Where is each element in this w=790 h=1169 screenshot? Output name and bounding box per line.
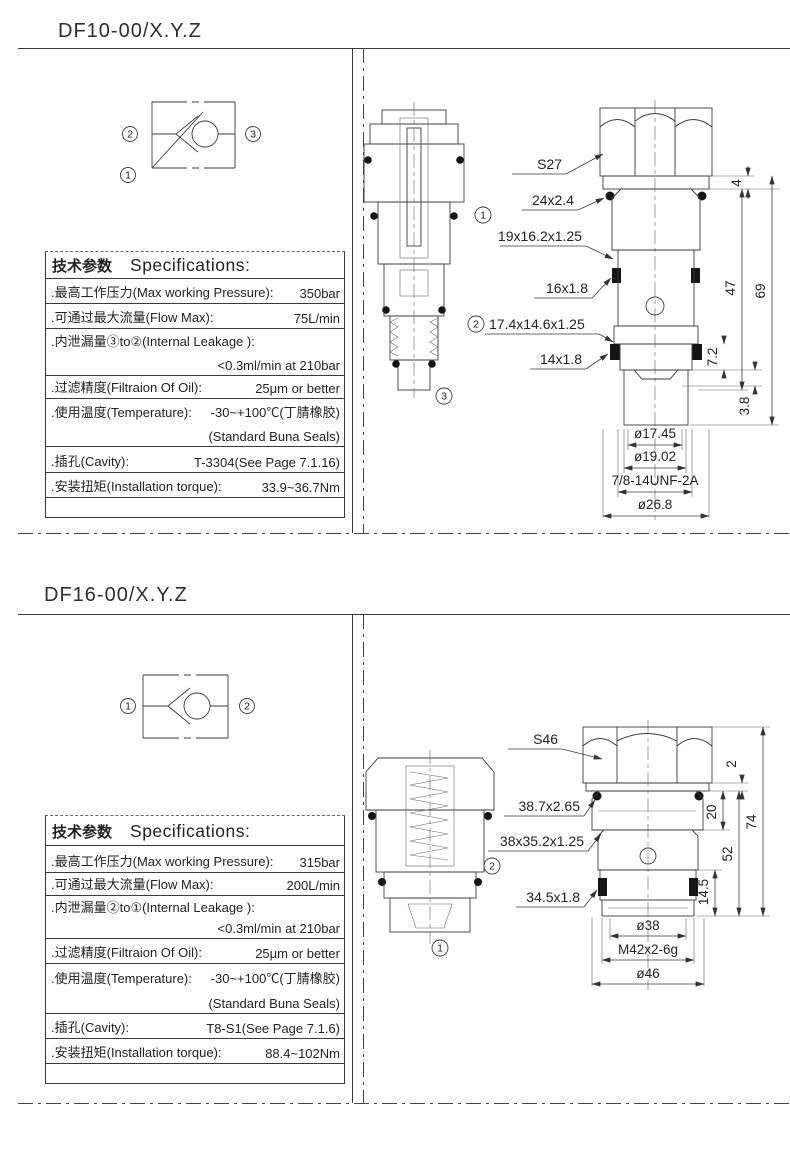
spec-row-filtration: .过滤精度(Filtraion Of Oil): 25μm or better — [46, 376, 344, 399]
dim-overall: 74 — [744, 814, 759, 830]
dim-tip: 3.8 — [737, 397, 752, 416]
dim-overall: 69 — [753, 283, 768, 298]
dim-washer: 4 — [729, 179, 744, 187]
specs-header-en: Specifications: — [130, 255, 250, 276]
dim-thread: 7/8-14UNF-2A — [611, 473, 698, 488]
spec-row-pressure: .最高工作压力(Max working Pressure): 315bar — [46, 846, 344, 873]
specs-header: 技术参数 Specifications: — [46, 252, 344, 279]
df10-leader-labels: S27 24x2.4 19x16.2x1.25 16x1.8 2 17.4x14… — [468, 154, 613, 369]
label-seal1: 24x2.4 — [532, 192, 574, 208]
port-label-2: 2 — [484, 858, 500, 874]
spec-row-flow: .可通过最大流量(Flow Max): 200L/min — [46, 873, 344, 896]
svg-text:3: 3 — [250, 129, 256, 141]
svg-text:1: 1 — [480, 210, 486, 222]
symbol-port-left: 1 — [121, 699, 136, 714]
df16-side-dimensions: 2 20 52 74 14.5 — [696, 727, 770, 916]
label-seal1: 38.7x2.65 — [519, 798, 581, 814]
label-seal5: 14x1.8 — [540, 351, 582, 367]
symbol-port-bottom: 1 — [121, 168, 136, 183]
df10-hydraulic-symbol: 2 3 1 — [100, 90, 280, 190]
label-seal2: 38x35.2x1.25 — [500, 833, 584, 849]
port-label-1: 1 — [475, 207, 491, 223]
df16-cross-section: 2 1 — [366, 750, 500, 956]
spec-row-empty — [46, 498, 344, 518]
df10-bottom-dimensions: ø17.45 ø19.02 7/8-14UNF-2A ø26.8 — [603, 426, 709, 518]
svg-text:1: 1 — [125, 701, 131, 713]
svg-text:1: 1 — [437, 943, 443, 955]
spec-row-cavity: .插孔(Cavity): T-3304(See Page 7.1.16) — [46, 447, 344, 473]
df16-leader-labels: S46 38.7x2.65 38x35.2x1.25 34.5x1.8 — [488, 731, 602, 907]
specs-header-en: Specifications: — [130, 821, 250, 842]
spec-row-leakage-value: <0.3ml/min at 210bar — [46, 918, 344, 939]
spec-row-leakage-label: .内泄漏量③to②(Internal Leakage ): — [46, 329, 344, 352]
dim-dia2: ø46 — [636, 966, 659, 981]
svg-text:2: 2 — [127, 129, 133, 141]
label-seal3: 34.5x1.8 — [526, 889, 580, 905]
spec-row-seals: (Standard Buna Seals) — [46, 989, 344, 1014]
specs-header-cn: 技术参数 — [52, 255, 112, 276]
section-bottom-dashdot — [18, 533, 790, 534]
df10-side-dimensions: 4 47 69 7.2 3.8 — [682, 166, 780, 425]
dim-thread: M42x2-6g — [618, 942, 678, 957]
spec-row-temperature: .使用温度(Temperature): -30~+100℃(丁腈橡胶) — [46, 399, 344, 423]
port-label-1: 1 — [432, 940, 448, 956]
spec-row-pressure: .最高工作压力(Max working Pressure): 350bar — [46, 279, 344, 304]
spec-row-seals: (Standard Buna Seals) — [46, 423, 344, 447]
svg-text:3: 3 — [441, 391, 447, 403]
dim-dia2: ø19.02 — [634, 449, 676, 464]
df16-drawing-area: 2 1 ø — [352, 614, 790, 1103]
dim-washer: 2 — [724, 760, 739, 768]
spec-row-filtration: .过滤精度(Filtraion Of Oil): 25μm or better — [46, 939, 344, 964]
spec-row-empty — [46, 1064, 344, 1084]
dim-dia3: ø26.8 — [638, 497, 673, 512]
dim-dia1: ø17.45 — [634, 426, 676, 441]
spec-row-torque: .安装扭矩(Installation torque): 88.4~102Nm — [46, 1039, 344, 1064]
specs-header-cn: 技术参数 — [52, 821, 112, 842]
dim-lower: 52 — [720, 846, 735, 861]
specs-table-df10: 技术参数 Specifications: .最高工作压力(Max working… — [45, 251, 345, 518]
specs-table-df16: 技术参数 Specifications: .最高工作压力(Max working… — [45, 815, 345, 1084]
spec-row-flow: .可通过最大流量(Flow Max): 75L/min — [46, 304, 344, 329]
port-label-2: 2 — [468, 316, 484, 332]
dim-tip: 14.5 — [696, 879, 711, 905]
df10-cross-section: 1 3 — [364, 102, 491, 404]
df16-hydraulic-symbol: 1 2 — [100, 650, 280, 750]
dim-mid: 20 — [704, 804, 719, 819]
df16-bottom-dimensions: ø38 M42x2-6g ø46 — [592, 918, 704, 986]
dim-dia1: ø38 — [636, 918, 659, 933]
spec-row-temperature: .使用温度(Temperature): -30~+100℃(丁腈橡胶) — [46, 964, 344, 989]
spec-row-leakage-value: <0.3ml/min at 210bar — [46, 352, 344, 376]
symbol-port-left: 2 — [123, 127, 138, 142]
section-title-df10: DF10-00/X.Y.Z — [58, 20, 202, 43]
symbol-port-right: 2 — [240, 699, 255, 714]
spec-row-leakage-label: .内泄漏量②to①(Internal Leakage ): — [46, 896, 344, 918]
spec-row-torque: .安装扭矩(Installation torque): 33.9~36.7Nm — [46, 473, 344, 498]
dim-groove: 7.2 — [705, 348, 720, 367]
svg-text:2: 2 — [244, 701, 250, 713]
svg-text:2: 2 — [489, 861, 495, 873]
label-seal4: 17.4x14.6x1.25 — [489, 316, 585, 332]
symbol-port-right: 3 — [246, 127, 261, 142]
label-seal3: 16x1.8 — [546, 280, 588, 296]
section-title-df16: DF16-00/X.Y.Z — [44, 584, 188, 607]
label-seal2: 19x16.2x1.25 — [498, 228, 582, 244]
section-bottom-dashdot-2 — [18, 1103, 790, 1104]
spec-row-cavity: .插孔(Cavity): T8-S1(See Page 7.1.6) — [46, 1014, 344, 1039]
dim-mid: 47 — [723, 280, 738, 295]
df10-drawing-area: 1 3 — [352, 48, 790, 533]
specs-header: 技术参数 Specifications: — [46, 816, 344, 846]
label-wrench: S27 — [537, 156, 562, 172]
label-wrench: S46 — [533, 731, 558, 747]
svg-text:2: 2 — [473, 319, 479, 331]
port-label-3: 3 — [436, 388, 452, 404]
catalog-page: DF10-00/X.Y.Z 2 3 1 技术参数 Specifications: — [0, 0, 790, 1169]
svg-text:1: 1 — [125, 170, 131, 182]
